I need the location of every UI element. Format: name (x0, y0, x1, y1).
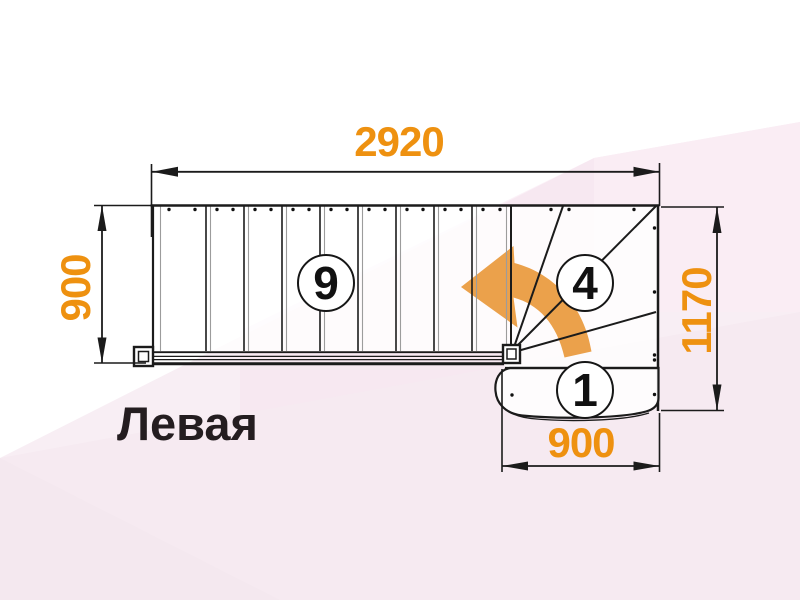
first-step-badge: 1 (556, 361, 614, 419)
winder-steps-count-badge: 4 (556, 254, 614, 312)
dimension-bottom-label: 900 (547, 419, 614, 467)
dimension-top-label: 2920 (354, 118, 443, 166)
staircase-plan-drawing: 9 4 1 2920 900 1170 900 Левая (0, 0, 800, 600)
straight-steps-count-badge: 9 (297, 254, 355, 312)
stair-side-title: Левая (117, 396, 258, 451)
dimension-right-label: 1170 (673, 267, 721, 354)
dimension-left-label: 900 (52, 254, 100, 321)
